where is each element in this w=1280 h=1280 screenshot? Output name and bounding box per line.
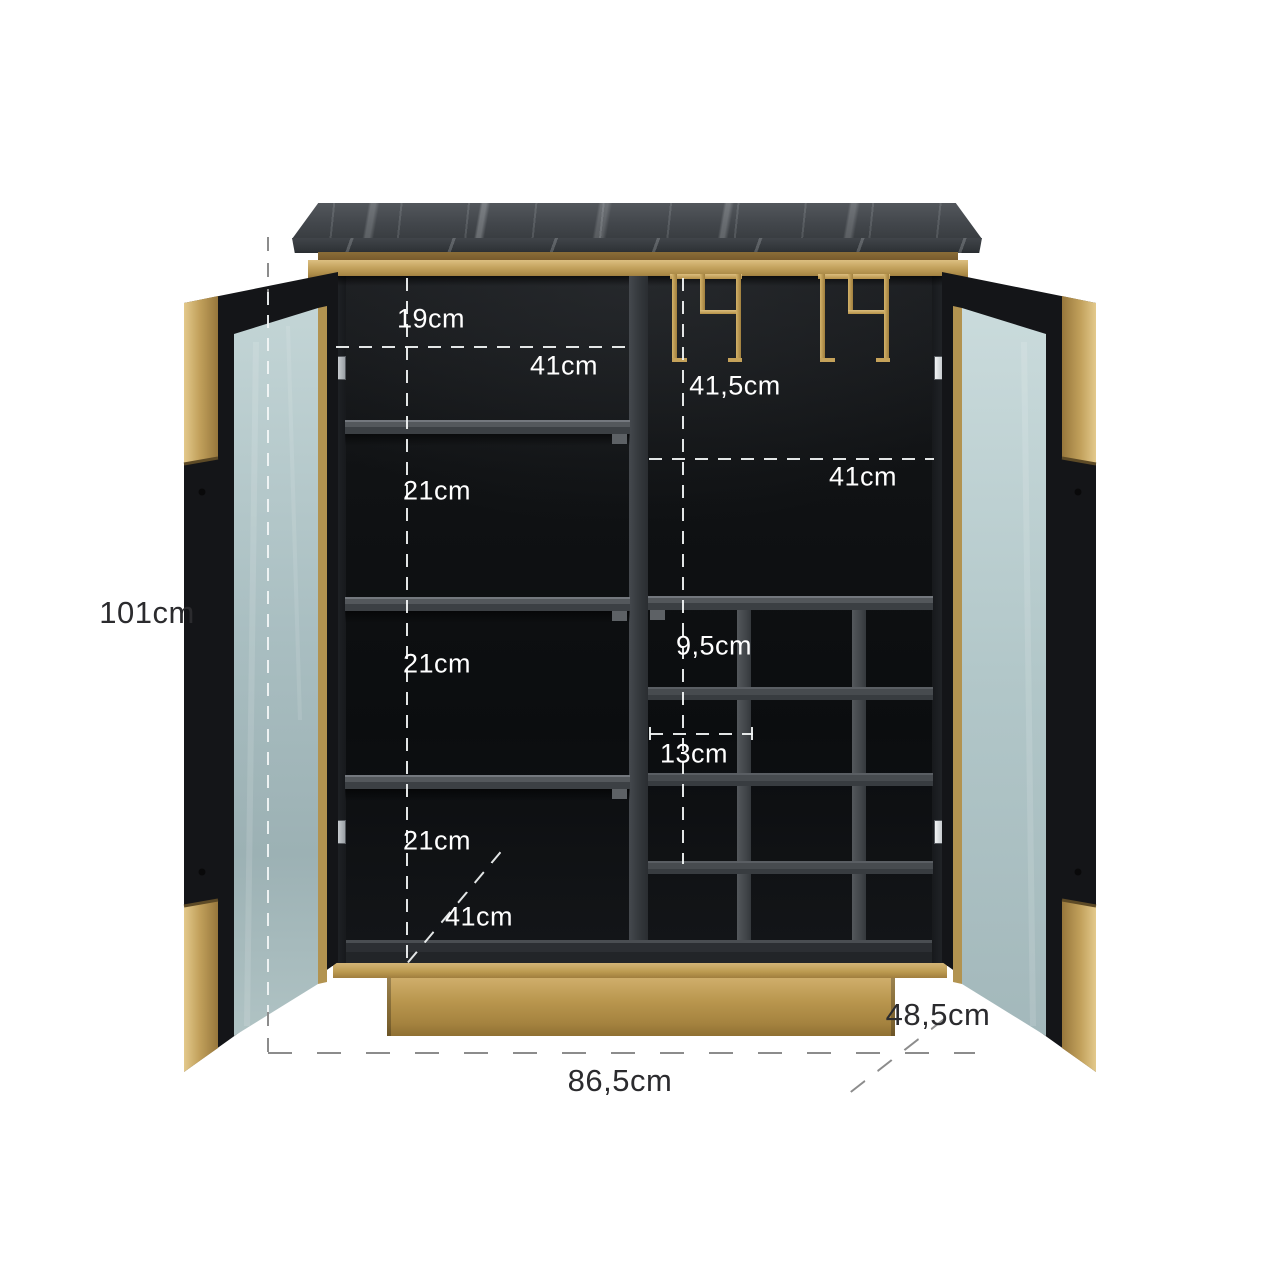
rack-cell-width-dim-line [650, 733, 753, 735]
left-interior-width-dim-line [336, 346, 629, 348]
right-door [942, 272, 1096, 1072]
product-diagram-canvas: 19cm 41cm 41,5cm 41cm 21cm 21cm 9,5cm 13… [0, 0, 1280, 1280]
height-dim-line-bottom [267, 1012, 269, 1054]
width-dim-line [268, 1052, 975, 1054]
height-dim-line-top [267, 237, 269, 292]
dim-label-shelf-gap-middle: 21cm [403, 649, 471, 680]
left-door [184, 272, 338, 1072]
dim-label-top-section: 19cm [397, 304, 465, 335]
dim-label-right-width: 41cm [829, 462, 897, 493]
left-interior-vertical-dim-line [406, 278, 408, 960]
dim-label-rack-cell-height: 9,5cm [676, 631, 752, 662]
dim-label-overall-height: 101cm [99, 595, 195, 631]
dim-label-left-width: 41cm [530, 351, 598, 382]
dim-label-overall-width: 86,5cm [568, 1063, 673, 1099]
right-interior-width-dim-line [649, 458, 934, 460]
dim-label-bottom-width: 41cm [445, 902, 513, 933]
height-dim-line-over-door [267, 292, 269, 1012]
right-interior-vertical-dim-line [682, 278, 684, 864]
dim-label-rack-cell-width: 13cm [660, 739, 728, 770]
rack-dim-tick-left [649, 727, 651, 740]
dim-label-right-top-height: 41,5cm [689, 371, 781, 402]
dim-label-shelf-gap-upper: 21cm [403, 476, 471, 507]
dim-label-overall-depth: 48,5cm [886, 997, 991, 1033]
rack-dim-tick-right [751, 727, 753, 740]
dim-label-shelf-gap-lower: 21cm [403, 826, 471, 857]
